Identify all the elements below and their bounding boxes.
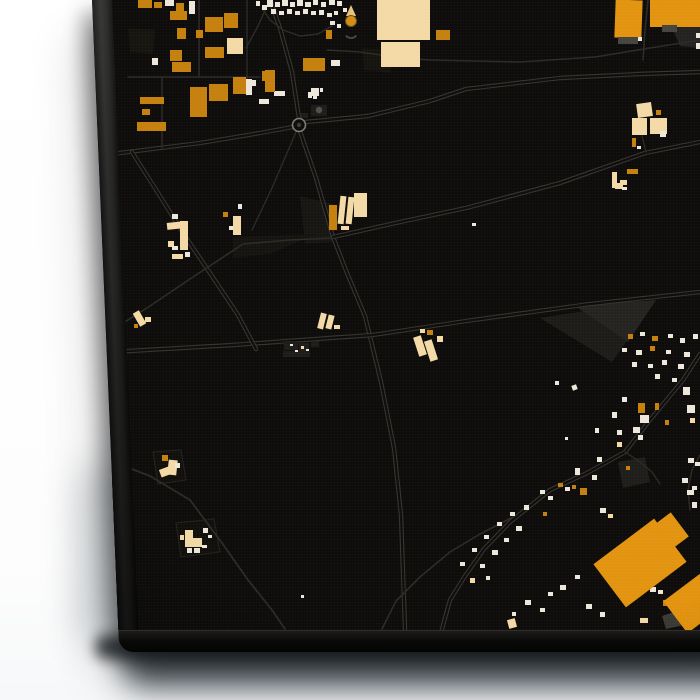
- building: [274, 91, 285, 96]
- building: [655, 403, 659, 410]
- building: [295, 11, 300, 15]
- building: [640, 332, 645, 336]
- building: [202, 545, 207, 548]
- building: [334, 11, 338, 15]
- building: [142, 109, 150, 115]
- building: [633, 427, 640, 433]
- building: [329, 205, 337, 230]
- building: [203, 528, 208, 533]
- building: [326, 30, 332, 39]
- building: [662, 25, 677, 32]
- building: [597, 457, 602, 462]
- building: [311, 88, 319, 96]
- building: [622, 187, 627, 190]
- building: [696, 43, 700, 49]
- building: [692, 486, 697, 490]
- building: [555, 381, 559, 385]
- building: [354, 193, 367, 217]
- building: [256, 1, 260, 6]
- building: [548, 592, 553, 596]
- building: [193, 538, 202, 547]
- building: [334, 325, 340, 329]
- building: [306, 349, 309, 351]
- building: [196, 30, 203, 38]
- building: [695, 462, 700, 466]
- building: [209, 84, 228, 101]
- building: [586, 604, 592, 609]
- building: [650, 346, 655, 351]
- building: [692, 502, 697, 508]
- building: [337, 24, 341, 28]
- building: [172, 214, 178, 219]
- building: [543, 512, 547, 516]
- building: [658, 590, 663, 594]
- building: [497, 522, 502, 526]
- building: [233, 216, 241, 235]
- building: [575, 575, 580, 579]
- building: [301, 113, 308, 118]
- building: [436, 30, 450, 40]
- building: [684, 352, 690, 357]
- building: [224, 13, 238, 28]
- building: [177, 28, 186, 39]
- building: [262, 5, 267, 10]
- building: [460, 562, 465, 566]
- building: [320, 88, 323, 92]
- building: [618, 37, 638, 44]
- building: [303, 58, 325, 71]
- building: [248, 80, 256, 86]
- building: [693, 334, 698, 339]
- building: [189, 1, 195, 14]
- building: [208, 535, 212, 538]
- building: [637, 146, 641, 149]
- building: [275, 2, 280, 7]
- building: [290, 2, 295, 7]
- building: [560, 585, 566, 590]
- building: [627, 169, 638, 174]
- building: [682, 478, 688, 483]
- church-marker-icon: [346, 16, 357, 27]
- building: [154, 2, 162, 8]
- building: [330, 21, 335, 25]
- building: [267, 0, 273, 7]
- building: [678, 364, 684, 369]
- building: [185, 530, 193, 547]
- building: [313, 0, 318, 5]
- building: [486, 576, 490, 580]
- building: [540, 490, 545, 494]
- building: [636, 350, 642, 355]
- building: [329, 0, 335, 5]
- building: [572, 485, 576, 489]
- building: [617, 430, 622, 435]
- building: [558, 483, 563, 487]
- building: [229, 226, 233, 230]
- building: [683, 387, 690, 395]
- building: [145, 317, 151, 322]
- building: [696, 33, 700, 38]
- building: [176, 3, 184, 11]
- building: [185, 252, 190, 257]
- building: [265, 70, 275, 92]
- building: [668, 334, 673, 338]
- building: [632, 118, 647, 135]
- building: [343, 8, 347, 12]
- building: [592, 475, 597, 480]
- building: [680, 338, 685, 343]
- building: [295, 350, 298, 352]
- map-svg: [112, 0, 700, 630]
- building: [271, 9, 276, 14]
- grove-nw: [128, 28, 155, 54]
- building: [165, 0, 174, 6]
- building: [688, 458, 694, 463]
- building: [331, 60, 340, 66]
- building: [516, 526, 522, 531]
- building: [632, 138, 636, 147]
- map-face: [112, 0, 700, 630]
- building: [437, 336, 443, 342]
- building: [175, 463, 180, 468]
- building: [170, 50, 182, 61]
- building: [620, 180, 627, 185]
- building: [137, 122, 166, 131]
- building: [595, 428, 599, 433]
- building: [470, 578, 475, 583]
- roundabout-island: [297, 123, 301, 127]
- building: [525, 600, 531, 605]
- building: [205, 17, 223, 32]
- building: [337, 1, 342, 6]
- building: [583, 489, 587, 493]
- building: [427, 330, 433, 335]
- poi-circle-icon: [316, 107, 322, 113]
- building: [504, 538, 509, 542]
- canvas-bottom-edge: [118, 630, 700, 652]
- page: { "scene": { "wall_color": "#ffffff", "s…: [0, 0, 700, 700]
- building: [638, 403, 645, 413]
- building: [311, 341, 319, 347]
- building: [301, 595, 304, 598]
- building: [297, 0, 303, 6]
- building: [134, 324, 138, 328]
- building: [321, 2, 326, 7]
- building: [575, 468, 580, 475]
- building: [303, 9, 308, 14]
- building: [636, 102, 653, 118]
- building: [655, 374, 660, 379]
- building: [617, 442, 622, 447]
- building: [172, 254, 183, 259]
- building: [565, 437, 568, 440]
- building: [140, 97, 164, 104]
- building: [301, 346, 304, 349]
- building: [640, 415, 649, 423]
- building: [608, 514, 613, 518]
- building: [660, 131, 666, 137]
- building: [687, 405, 695, 413]
- building: [162, 455, 168, 461]
- building: [172, 62, 191, 72]
- building: [227, 38, 243, 54]
- building: [648, 364, 653, 368]
- building: [600, 612, 605, 617]
- building: [480, 564, 485, 568]
- building: [282, 0, 288, 6]
- building: [638, 435, 643, 440]
- building: [180, 221, 188, 250]
- building: [138, 0, 152, 8]
- building: [194, 548, 200, 553]
- building: [152, 58, 158, 65]
- building: [512, 612, 516, 616]
- building: [640, 618, 648, 623]
- building: [622, 348, 627, 352]
- building: [612, 412, 617, 418]
- building: [492, 550, 498, 555]
- building: [420, 329, 425, 333]
- building: [628, 334, 633, 339]
- building: [223, 212, 228, 217]
- building: [656, 110, 661, 115]
- building: [484, 535, 489, 539]
- building: [311, 11, 316, 15]
- building: [614, 0, 642, 38]
- building: [205, 47, 224, 58]
- building: [690, 418, 695, 423]
- building: [687, 490, 694, 495]
- building: [381, 42, 420, 67]
- building: [524, 505, 529, 510]
- building: [259, 99, 269, 104]
- building: [638, 37, 642, 41]
- building: [666, 350, 671, 354]
- building: [650, 0, 700, 27]
- building: [319, 10, 324, 15]
- building: [672, 378, 677, 382]
- building: [510, 512, 515, 516]
- building: [187, 548, 192, 553]
- building: [472, 548, 477, 552]
- building: [632, 362, 637, 367]
- wall-background: [0, 0, 700, 700]
- building: [600, 508, 606, 513]
- building: [626, 466, 630, 470]
- building: [180, 535, 184, 540]
- building: [548, 496, 553, 500]
- building: [472, 223, 476, 226]
- building: [170, 11, 187, 20]
- building: [652, 336, 658, 341]
- map-canvas-print: [92, 0, 700, 652]
- building: [279, 11, 284, 15]
- building: [565, 487, 570, 491]
- building: [662, 360, 667, 365]
- building: [540, 608, 545, 612]
- building: [233, 77, 246, 94]
- building: [327, 13, 332, 17]
- building: [287, 9, 292, 14]
- building: [290, 344, 293, 346]
- building: [665, 420, 669, 425]
- building: [341, 226, 349, 230]
- building: [622, 397, 627, 402]
- building: [190, 87, 207, 117]
- building: [238, 204, 242, 209]
- building: [172, 246, 178, 250]
- building: [305, 2, 311, 7]
- building: [377, 0, 430, 40]
